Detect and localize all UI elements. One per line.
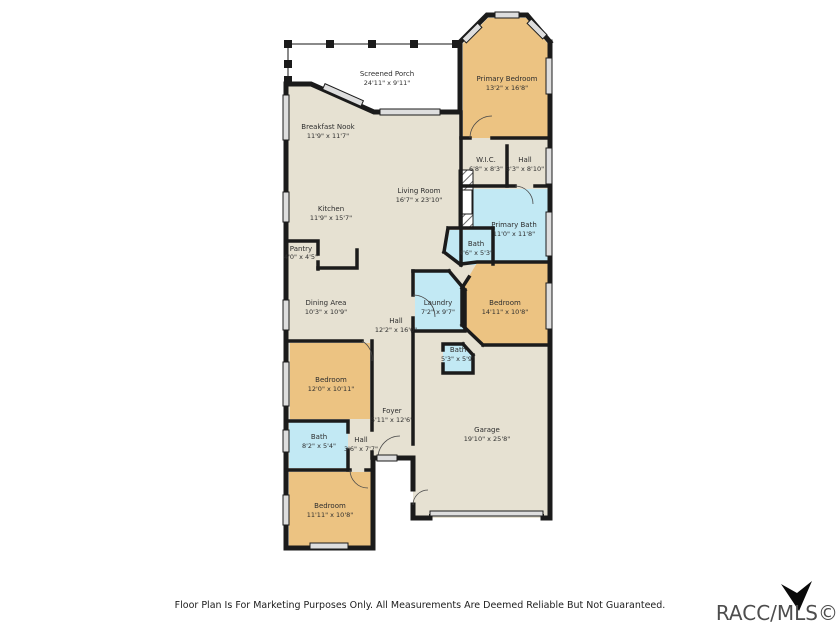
slider-living-porch xyxy=(380,109,440,115)
room-label-wic: W.I.C. xyxy=(476,156,496,164)
room-label-hall-front: Hall xyxy=(354,436,367,444)
window-primary-bath xyxy=(546,212,552,256)
room-label-primary-bedroom: Primary Bedroom xyxy=(477,75,538,83)
disclaimer-text: Floor Plan Is For Marketing Purposes Onl… xyxy=(175,600,666,611)
window-primary-bedroom xyxy=(546,58,552,94)
room-dims-bath-small: 4'6" x 5'3" xyxy=(459,249,493,257)
room-label-screened-porch: Screened Porch xyxy=(360,70,414,78)
room-dims-garage: 19'10" x 25'8" xyxy=(464,435,510,443)
room-label-hall-main: Hall xyxy=(389,317,402,325)
garage-door xyxy=(430,511,543,516)
room-label-primary-bath: Primary Bath xyxy=(491,221,537,229)
room-dims-foyer: 5'11" x 12'6" xyxy=(371,416,413,424)
watermark-text: RACC/MLS© xyxy=(716,601,838,625)
watermark: RACC/MLS© xyxy=(716,581,838,625)
floor-plan-image: Screened Porch 24'11" x 9'11" Primary Be… xyxy=(0,0,840,630)
bay-window-top xyxy=(495,12,519,18)
room-dims-bedroom-west: 12'0" x 10'11" xyxy=(308,385,354,393)
room-dims-primary-bedroom: 13'2" x 16'8" xyxy=(486,84,528,92)
room-label-bath-hall: Bath xyxy=(450,346,466,354)
room-dims-pantry: 4'0" x 4'5" xyxy=(284,253,318,261)
window-bedroom-south xyxy=(283,495,289,525)
room-dims-hall-primary: 3'3" x 8'10" xyxy=(506,165,544,173)
room-label-garage: Garage xyxy=(474,426,500,434)
room-dims-wic: 6'8" x 8'3" xyxy=(469,165,503,173)
window-dining xyxy=(283,300,289,330)
room-dims-bath-hall: 5'3" x 5'9" xyxy=(441,355,475,363)
room-label-dining-area: Dining Area xyxy=(306,299,347,307)
room-dims-bedroom-south: 11'11" x 10'8" xyxy=(307,511,353,519)
room-label-bedroom-south: Bedroom xyxy=(314,502,346,510)
room-label-kitchen: Kitchen xyxy=(318,205,344,213)
room-dims-kitchen: 11'9" x 15'7" xyxy=(310,214,352,222)
room-label-breakfast-nook: Breakfast Nook xyxy=(301,123,355,131)
window-kitchen xyxy=(283,192,289,222)
room-dims-bedroom-east: 14'11" x 10'8" xyxy=(482,308,528,316)
room-fills xyxy=(286,15,550,548)
window-breakfast-nook xyxy=(283,95,289,140)
room-label-bedroom-west: Bedroom xyxy=(315,376,347,384)
room-label-bath-small: Bath xyxy=(468,240,484,248)
room-dims-screened-porch: 24'11" x 9'11" xyxy=(364,79,410,87)
room-label-pantry: Pantry xyxy=(290,245,312,253)
floor-plan-page: Screened Porch 24'11" x 9'11" Primary Be… xyxy=(0,0,840,630)
window-bedroom-west xyxy=(283,362,289,406)
room-dims-hall-front: 3'6" x 7'7" xyxy=(344,445,378,453)
room-label-hall-primary: Hall xyxy=(518,156,531,164)
front-entry-sidelight xyxy=(377,455,397,461)
room-dims-living-room: 16'7" x 23'10" xyxy=(396,196,442,204)
room-label-laundry: Laundry xyxy=(424,299,453,307)
room-label-living-room: Living Room xyxy=(398,187,441,195)
room-dims-primary-bath: 11'0" x 11'8" xyxy=(493,230,535,238)
room-dims-bath-front: 8'2" x 5'4" xyxy=(302,442,336,450)
room-dims-hall-main: 12'2" x 16'0" xyxy=(375,326,417,334)
room-label-bath-front: Bath xyxy=(311,433,327,441)
room-label-bedroom-east: Bedroom xyxy=(489,299,521,307)
room-dims-breakfast-nook: 11'9" x 11'7" xyxy=(307,132,349,140)
window-hall-upper xyxy=(546,148,552,184)
window-bedroom-south-bottom xyxy=(310,543,348,549)
window-bedroom-east xyxy=(546,283,552,329)
room-dims-dining-area: 10'3" x 10'9" xyxy=(305,308,347,316)
room-label-foyer: Foyer xyxy=(382,407,402,415)
window-bath-front xyxy=(283,430,289,452)
room-dims-laundry: 7'2" x 9'7" xyxy=(421,308,455,316)
